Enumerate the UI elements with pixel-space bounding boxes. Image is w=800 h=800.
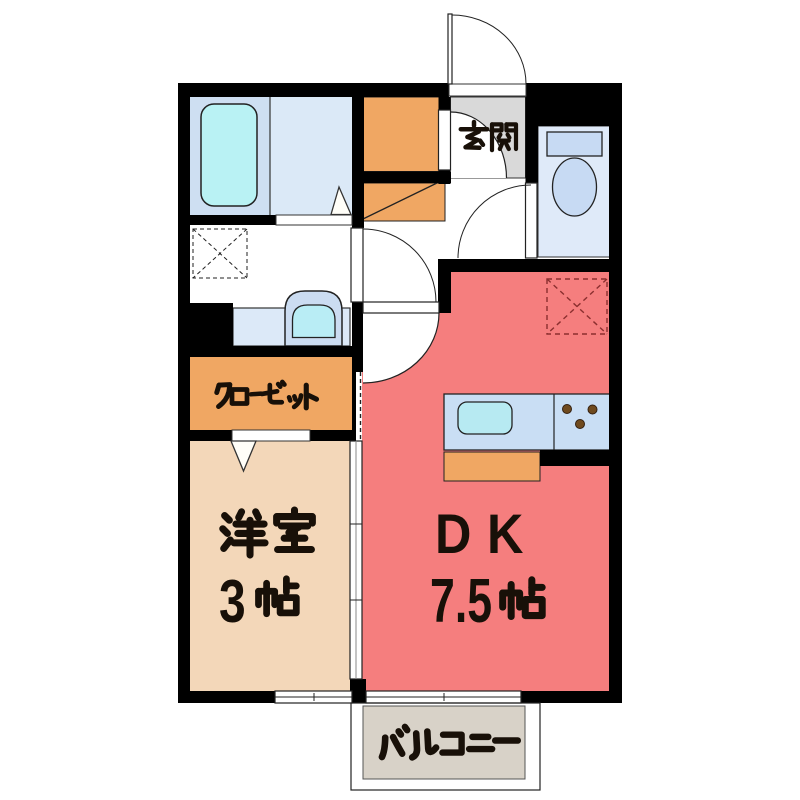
svg-text:7.5: 7.5 xyxy=(430,567,492,636)
svg-text:K: K xyxy=(487,504,523,566)
svg-text:3: 3 xyxy=(219,568,246,635)
svg-text:D: D xyxy=(435,504,471,566)
